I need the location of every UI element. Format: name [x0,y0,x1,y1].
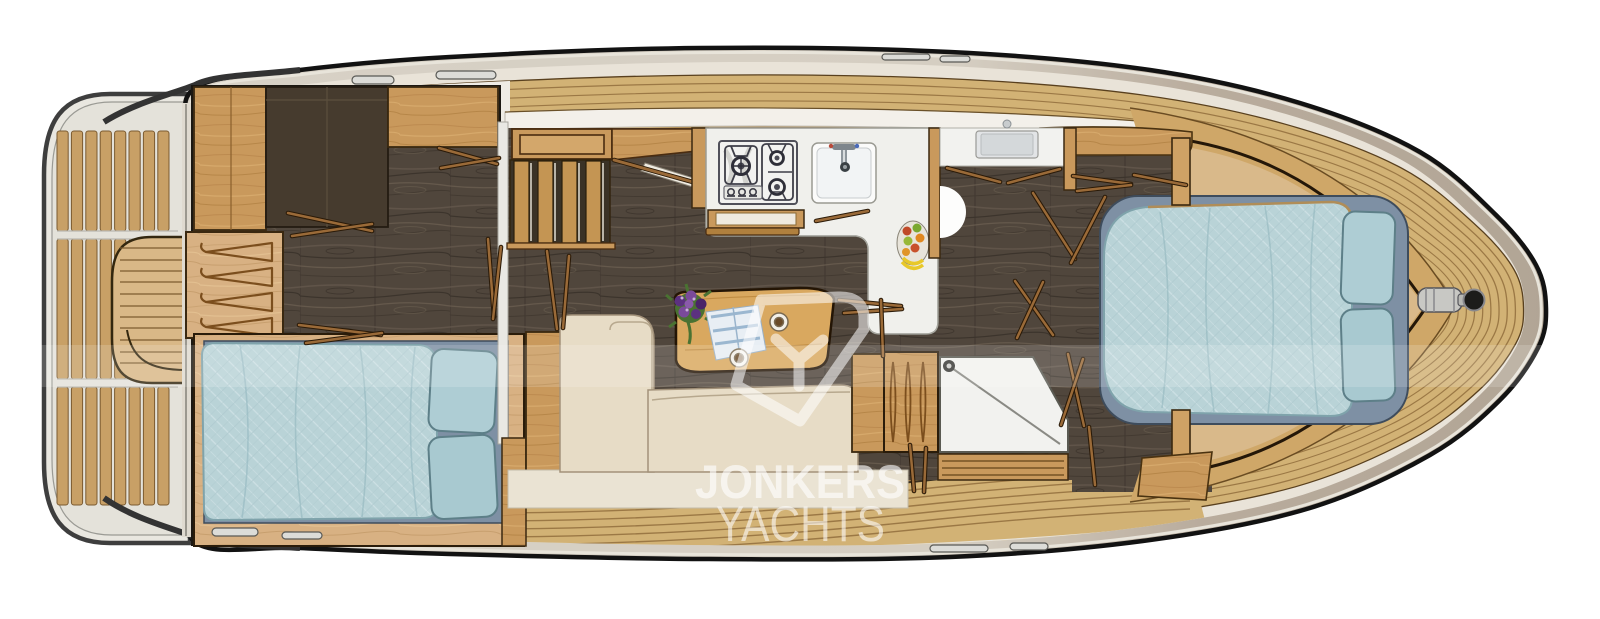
svg-text:YACHTS: YACHTS [716,496,885,552]
